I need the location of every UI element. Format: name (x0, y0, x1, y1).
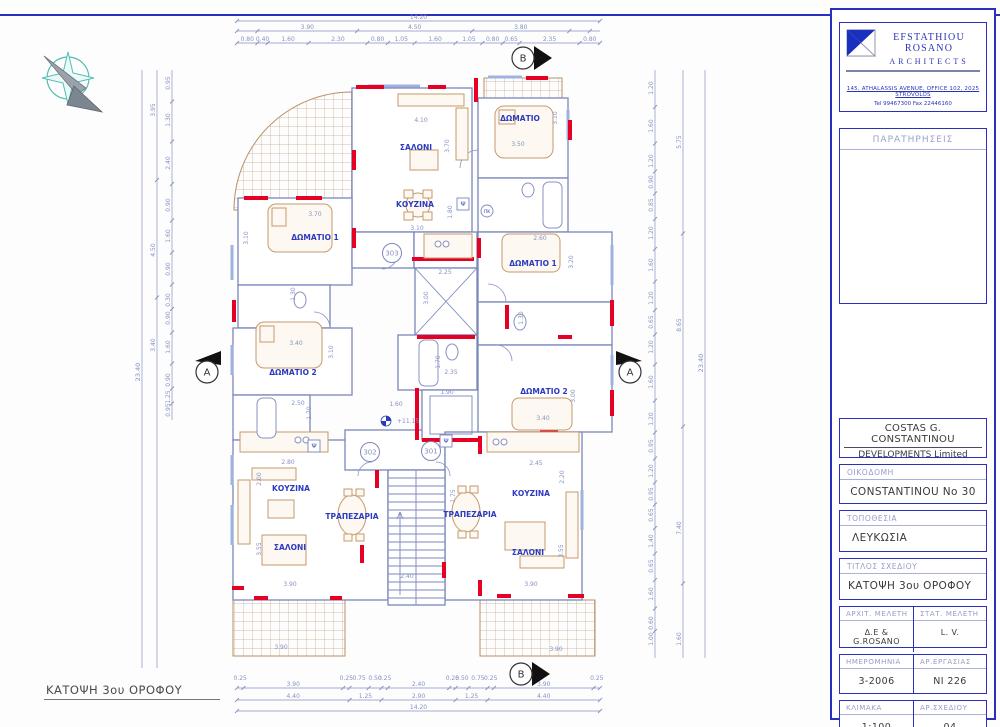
annotation-text: 1.60 (281, 36, 295, 43)
annotation-text: 3.90 (549, 646, 563, 653)
drawing-sheet: 14.203.904.503.800.800.401.602.300.801.0… (0, 0, 1000, 727)
annotation-text: 3.90 (524, 581, 538, 588)
annotation-text: 0.25 (484, 675, 498, 682)
annotation-text: 14.20 (410, 14, 427, 21)
annotation-text: ΚΟΥΖΙΝΑ (512, 489, 550, 498)
annotation-text: 1.60 (165, 229, 172, 243)
annotation-text: 2.80 (281, 459, 295, 466)
annotation-text: 14.20 (410, 704, 427, 711)
struct-cell: ΣΤΑΤ. ΜΕΛΕΤΗ L. V. (913, 607, 986, 652)
annotation-text: 3.10 (328, 345, 335, 359)
annotation-text: 7.40 (676, 521, 683, 535)
building-value: CONSTANTINOU No 30 (840, 480, 986, 503)
annotation-text: 0.75 (471, 675, 485, 682)
annotation-text: 1.30 (165, 113, 172, 127)
annotation-text: 2.00 (256, 472, 263, 486)
annotation-text: 1.20 (648, 81, 655, 95)
annotation-text: 3.00 (423, 291, 430, 305)
annotation-text: A (627, 368, 634, 379)
annotation-text: 1.20 (648, 464, 655, 478)
annotation-text: 1.60 (648, 375, 655, 389)
firm-subtitle: ARCHITECTS (876, 57, 982, 66)
annotation-text: ΔΩΜΑΤΙΟ 1 (291, 233, 339, 242)
annotation-text: 3.20 (568, 255, 575, 269)
arch-cell: ΑΡΧΙΤ. ΜΕΛΕΤΗ Δ.Ε & G.ROSANO (840, 607, 913, 652)
annotation-text: 0.80 (486, 36, 500, 43)
annotation-text: 1.70 (435, 355, 442, 369)
annotation-text: 2.45 (529, 460, 543, 467)
firm-name: EFSTATHIOU ROSANO ARCHITECTS (876, 32, 982, 66)
struct-value: L. V. (914, 621, 986, 643)
annotation-text: ΠΚ (484, 209, 491, 215)
annotation-text: 3.40 (150, 338, 157, 352)
annotation-text: 2.40 (400, 573, 414, 580)
annotation-text: 0.85 (648, 198, 655, 212)
annotation-text: 1.60 (648, 258, 655, 272)
annotation-text: 1.05 (395, 36, 409, 43)
annotation-text: 1.00 (648, 632, 655, 646)
annotation-text: 1.30 (290, 287, 297, 301)
date-value: 3-2006 (840, 669, 913, 693)
annotation-text: ΣΑΛΟΝΙ (512, 548, 544, 557)
annotation-text: 3.90 (283, 581, 297, 588)
annotation-text: 0.30 (165, 293, 172, 307)
annotation-text: A (204, 368, 211, 379)
annotation-text: 1.20 (648, 154, 655, 168)
annotation-text: 301 (424, 448, 437, 456)
drawing-title-value: ΚΑΤΟΨΗ 3ου ΟΡΟΦΟΥ (840, 574, 986, 597)
annotation-text: 23.40 (697, 354, 705, 373)
annotation-text: 3.70 (308, 211, 322, 218)
annotation-text: 0.90 (165, 262, 172, 276)
level-marker-icon (381, 421, 386, 426)
annotation-text: 5.75 (676, 135, 683, 149)
annotation-text: 0.60 (648, 616, 655, 630)
annotation-text: 1.20 (648, 291, 655, 305)
annotation-text: 1.60 (165, 340, 172, 354)
annotation-text: 3.55 (558, 544, 565, 558)
annotation-text: 2.30 (331, 36, 345, 43)
annotation-text: 3.00 (570, 389, 577, 403)
annotation-text: +11.15 (397, 418, 419, 425)
annotation-text: 0.95 (648, 487, 655, 501)
location-box: ΤΟΠΟΘΕΣΙΑ ΛΕΥΚΩΣΙΑ (839, 510, 987, 552)
annotation-text: 1.75 (450, 489, 457, 503)
scale-sheet-box: ΚΛΙΜΑΚΑ 1:100 ΑΡ.ΣΧΕΔΙΟΥ 04 (839, 700, 987, 727)
annotation-text: 23.40 (134, 363, 142, 382)
annotation-text: 3.40 (289, 340, 303, 347)
firm-phone: Tel 99467300 Fax 22446160 (840, 101, 986, 107)
sheet-value: 04 (914, 715, 986, 727)
annotation-text: 1.60 (389, 401, 403, 408)
annotation-text: 3.10 (410, 225, 424, 232)
annotation-text: 0.65 (648, 315, 655, 329)
annotation-text: 3.50 (511, 141, 525, 148)
annotation-text: 2.50 (291, 400, 305, 407)
annotation-text: 4.50 (408, 24, 422, 31)
annotation-text: 3.40 (536, 415, 550, 422)
annotation-text: 0.50 (455, 675, 469, 682)
annotation-text: 2.35 (444, 369, 458, 376)
annotation-text: B (518, 670, 525, 681)
annotation-text: 1.90 (440, 389, 454, 396)
annotation-text: 1.40 (648, 534, 655, 548)
annotation-text: 1.05 (462, 36, 476, 43)
annotation-text: 3.95 (150, 103, 157, 117)
annotation-text: 4.40 (287, 693, 301, 700)
client-type: DEVELOPMENTS Limited (840, 448, 986, 460)
annotation-text: 1.20 (648, 340, 655, 354)
annotation-text: 4.40 (537, 693, 551, 700)
annotation-text: ΣΑΛΟΝΙ (274, 543, 306, 552)
annotation-text: 0.25 (340, 675, 354, 682)
annotation-text: 302 (363, 449, 376, 457)
remarks-box: ΠΑΡΑΤΗΡΗΣΕΙΣ (839, 128, 987, 304)
annotation-text: 0.75 (352, 675, 366, 682)
job-cell: ΑΡ.ΕΡΓΑΣΙΑΣ NI 226 (913, 655, 986, 693)
title-block-panel: EFSTATHIOU ROSANO ARCHITECTS 145, ATHALA… (830, 8, 996, 720)
floor-plan-canvas: 14.203.904.503.800.800.401.602.300.801.0… (0, 0, 830, 727)
annotation-text: 1.60 (676, 632, 683, 646)
client-name: COSTAS G. CONSTANTINOU (844, 419, 982, 448)
annotation-text: ΤΡΑΠΕΖΑΡΙΑ (325, 512, 378, 521)
annotation-text: 1.25 (165, 390, 172, 404)
building-label: ΟΙΚΟΔΟΜΗ (840, 465, 986, 480)
annotation-text: ΔΩΜΑΤΙΟ (500, 114, 540, 123)
annotation-text: ΔΩΜΑΤΙΟ 1 (509, 259, 557, 268)
annotation-text: 1.60 (648, 119, 655, 133)
client-box: COSTAS G. CONSTANTINOU DEVELOPMENTS Limi… (839, 418, 987, 458)
annotation-text: 3.90 (301, 24, 315, 31)
job-value: NI 226 (914, 669, 986, 693)
drawing-title-box: ΤΙΤΛΟΣ ΣΧΕΔΙΟΥ ΚΑΤΟΨΗ 3ου ΟΡΟΦΟΥ (839, 558, 987, 600)
annotation-text: 1.20 (648, 226, 655, 240)
annotation-text: 1.80 (447, 205, 454, 219)
annotation-text: 0.95 (165, 76, 172, 90)
annotation-text: Ψ (460, 200, 465, 208)
designers-box: ΑΡΧΙΤ. ΜΕΛΕΤΗ Δ.Ε & G.ROSANO ΣΤΑΤ. ΜΕΛΕΤ… (839, 606, 987, 648)
annotation-text: 0.90 (165, 373, 172, 387)
annotation-text: 1.25 (465, 693, 479, 700)
job-label: ΑΡ.ΕΡΓΑΣΙΑΣ (914, 655, 986, 669)
annotation-text: 3.70 (444, 139, 451, 153)
annotation-text: 3.90 (537, 681, 551, 688)
annotation-text: B (520, 54, 527, 65)
arch-label: ΑΡΧΙΤ. ΜΕΛΕΤΗ (840, 607, 913, 621)
sheet-cell: ΑΡ.ΣΧΕΔΙΟΥ 04 (913, 701, 986, 727)
annotation-text: 0.90 (648, 175, 655, 189)
location-label: ΤΟΠΟΘΕΣΙΑ (840, 511, 986, 526)
struct-label: ΣΤΑΤ. ΜΕΛΕΤΗ (914, 607, 986, 621)
date-label: ΗΜΕΡΟΜΗΝΙΑ (840, 655, 913, 669)
annotation-text: ΔΩΜΑΤΙΟ 2 (269, 368, 317, 377)
annotation-text: 3.10 (552, 111, 559, 125)
annotation-text: 0.65 (504, 36, 518, 43)
annotation-text: ΔΩΜΑΤΙΟ 2 (520, 387, 568, 396)
building-box: ΟΙΚΟΔΟΜΗ CONSTANTINOU No 30 (839, 464, 987, 504)
annotation-text: 1.70 (306, 406, 313, 420)
annotation-text: ΣΑΛΟΝΙ (400, 143, 432, 152)
firm-header-box: EFSTATHIOU ROSANO ARCHITECTS 145, ATHALA… (839, 22, 987, 112)
annotation-text: 0.90 (165, 311, 172, 325)
annotation-text: 1.25 (359, 693, 373, 700)
date-job-box: ΗΜΕΡΟΜΗΝΙΑ 3-2006 ΑΡ.ΕΡΓΑΣΙΑΣ NI 226 (839, 654, 987, 694)
annotation-text: 2.20 (559, 470, 566, 484)
annotation-text: 1.60 (648, 587, 655, 601)
annotation-text: 3.90 (274, 644, 288, 651)
annotation-text: ΚΟΥΖΙΝΑ (396, 200, 434, 209)
drawing-title-label: ΤΙΤΛΟΣ ΣΧΕΔΙΟΥ (840, 559, 986, 574)
annotation-text: 3.10 (243, 231, 250, 245)
annotation-text: ΚΟΥΖΙΝΑ (272, 484, 310, 493)
annotation-text: 0.80 (583, 36, 597, 43)
annotation-text: 0.65 (648, 559, 655, 573)
annotation-text: 2.40 (412, 681, 426, 688)
annotation-text: 0.25 (234, 675, 248, 682)
annotation-text: 2.25 (438, 269, 452, 276)
annotation-text: 2.35 (543, 36, 557, 43)
annotation-text: 0.90 (165, 198, 172, 212)
location-value: ΛΕΥΚΩΣΙΑ (840, 526, 986, 549)
arch-value: Δ.Ε & G.ROSANO (840, 621, 913, 652)
north-compass-icon (42, 52, 102, 112)
firm-rule (846, 70, 980, 72)
annotation-text: 3.55 (256, 542, 263, 556)
annotation-text: 1.20 (648, 412, 655, 426)
annotation-text: 4.50 (150, 243, 157, 257)
scale-value: 1:100 (840, 715, 913, 727)
annotation-text: 0.95 (648, 439, 655, 453)
annotation-text: 2.60 (533, 235, 547, 242)
annotation-text: 0.80 (371, 36, 385, 43)
annotation-text: Ψ (443, 437, 448, 445)
annotation-text: 0.80 (241, 36, 255, 43)
annotation-text: 1.30 (518, 311, 525, 325)
firm-address: 145, ATHALASSIS AVENUE, OFFICE 102, 2025… (840, 86, 986, 98)
section-arrow-icon (534, 46, 552, 70)
annotation-text: 0.40 (256, 36, 270, 43)
scale-label: ΚΛΙΜΑΚΑ (840, 701, 913, 715)
annotation-text: 3.90 (287, 681, 301, 688)
drawing-caption: ΚΑΤΟΨΗ 3ου ΟΡΟΦΟΥ (44, 683, 220, 700)
annotation-text: Ψ (311, 442, 316, 450)
annotation-text: 3.80 (514, 24, 528, 31)
annotation-text: 8.65 (676, 318, 683, 332)
date-cell: ΗΜΕΡΟΜΗΝΙΑ 3-2006 (840, 655, 913, 693)
remarks-label: ΠΑΡΑΤΗΡΗΣΕΙΣ (840, 129, 986, 150)
annotation-text: ΤΡΑΠΕΖΑΡΙΑ (443, 510, 496, 519)
firm-logo-icon (846, 29, 876, 57)
level-marker-icon (386, 416, 391, 421)
annotation-text: 303 (385, 250, 398, 258)
sheet-label: ΑΡ.ΣΧΕΔΙΟΥ (914, 701, 986, 715)
annotation-text: 2.90 (412, 693, 426, 700)
annotation-text: 1.60 (428, 36, 442, 43)
scale-cell: ΚΛΙΜΑΚΑ 1:100 (840, 701, 913, 727)
annotation-text: 0.25 (378, 675, 392, 682)
annotation-text: 0.25 (590, 675, 604, 682)
annotation-text: 0.65 (648, 508, 655, 522)
annotation-text: 2.40 (165, 156, 172, 170)
annotation-text: 4.10 (414, 117, 428, 124)
